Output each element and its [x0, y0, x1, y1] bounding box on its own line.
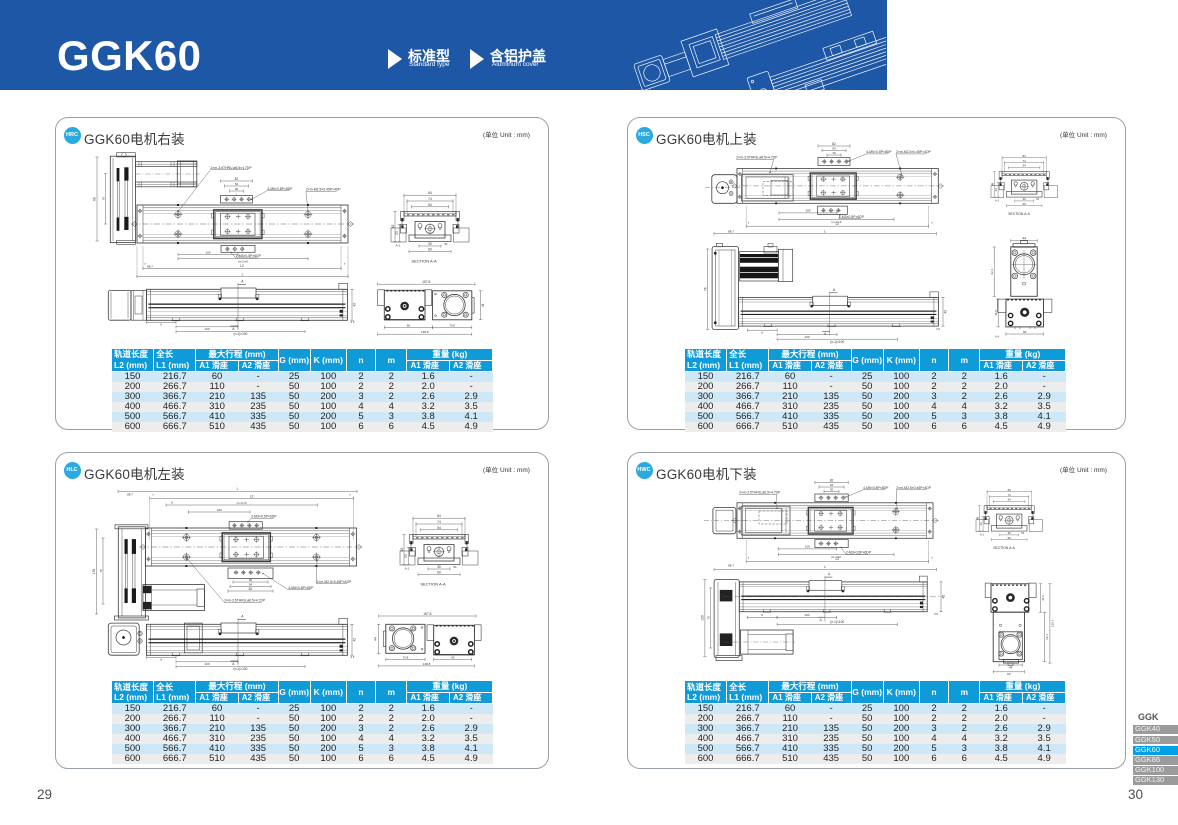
svg-text:54: 54 — [1008, 498, 1012, 502]
svg-text:7: 7 — [931, 556, 933, 560]
svg-text:44.5: 44.5 — [1041, 595, 1045, 601]
svg-text:82: 82 — [830, 479, 834, 483]
svg-text:2×m-3.5THRU,ø6.5×4.7DP: 2×m-3.5THRU,ø6.5×4.7DP — [739, 491, 781, 495]
svg-text:60: 60 — [1008, 536, 1012, 540]
svg-text:136.1: 136.1 — [1050, 619, 1054, 627]
svg-text:A: A — [820, 618, 823, 622]
svg-text:88.7: 88.7 — [728, 563, 734, 567]
svg-text:6: 6 — [761, 613, 763, 617]
svg-text:23: 23 — [979, 522, 983, 526]
svg-text:30: 30 — [830, 488, 834, 492]
svg-text:84: 84 — [1008, 488, 1012, 492]
svg-text:L: L — [824, 565, 826, 569]
svg-text:60: 60 — [1007, 672, 1011, 676]
svg-text:30: 30 — [1008, 531, 1012, 535]
svg-text:2-M3×0.5P×6DP: 2-M3×0.5P×6DP — [846, 550, 872, 554]
svg-text:42: 42 — [942, 595, 946, 599]
svg-text:54: 54 — [830, 483, 834, 487]
svg-text:62.1: 62.1 — [1045, 634, 1049, 640]
svg-text:A: A — [828, 572, 831, 576]
svg-text:7: 7 — [748, 556, 750, 560]
svg-text:79: 79 — [706, 616, 710, 620]
svg-text:51: 51 — [1021, 531, 1024, 535]
svg-text:3.5: 3.5 — [934, 612, 938, 616]
svg-text:130: 130 — [701, 615, 705, 621]
svg-text:4-M5×0.8P×8DP: 4-M5×0.8P×8DP — [863, 486, 889, 490]
svg-text:48: 48 — [975, 516, 979, 520]
svg-text:(n-1)×100: (n-1)×100 — [830, 620, 844, 624]
svg-text:A-1: A-1 — [980, 532, 985, 536]
svg-text:SECTION A-A: SECTION A-A — [993, 546, 1015, 550]
svg-text:44: 44 — [1009, 665, 1013, 669]
svg-text:100: 100 — [804, 613, 809, 617]
svg-text:L2: L2 — [835, 557, 839, 561]
svg-text:2×m-M2.5×0.45P×4DP: 2×m-M2.5×0.45P×4DP — [896, 486, 932, 490]
svg-text:74: 74 — [1008, 493, 1012, 497]
svg-text:100: 100 — [805, 545, 810, 549]
